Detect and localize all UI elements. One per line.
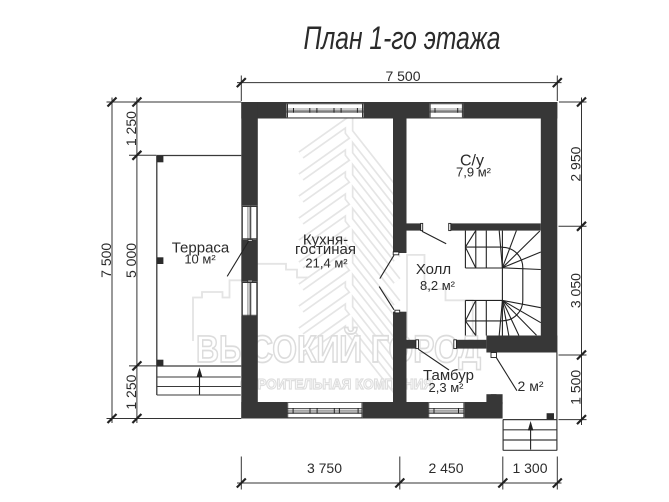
svg-text:7,9 м²: 7,9 м² [456, 165, 492, 180]
svg-text:8,2 м²: 8,2 м² [420, 278, 456, 293]
svg-text:7 500: 7 500 [385, 68, 420, 84]
svg-text:Холл: Холл [416, 261, 451, 278]
svg-text:2,3 м²: 2,3 м² [429, 380, 465, 395]
svg-text:3 050: 3 050 [568, 273, 584, 308]
svg-text:1 500: 1 500 [568, 370, 584, 405]
svg-text:ВЫСОКИЙ ГОРОД: ВЫСОКИЙ ГОРОД [196, 326, 481, 371]
svg-text:7 500: 7 500 [98, 243, 114, 278]
svg-text:1 250: 1 250 [123, 111, 139, 146]
svg-text:План 1-го этажа: План 1-го этажа [304, 20, 501, 56]
svg-text:3 750: 3 750 [307, 460, 342, 476]
svg-text:10 м²: 10 м² [184, 251, 216, 266]
svg-text:1 250: 1 250 [123, 374, 139, 409]
svg-text:2 950: 2 950 [568, 146, 584, 181]
svg-text:5 000: 5 000 [123, 243, 139, 278]
svg-text:2 450: 2 450 [428, 460, 463, 476]
svg-text:21,4 м²: 21,4 м² [305, 256, 348, 271]
svg-text:1 300: 1 300 [512, 460, 547, 476]
svg-text:2 м²: 2 м² [518, 378, 544, 394]
